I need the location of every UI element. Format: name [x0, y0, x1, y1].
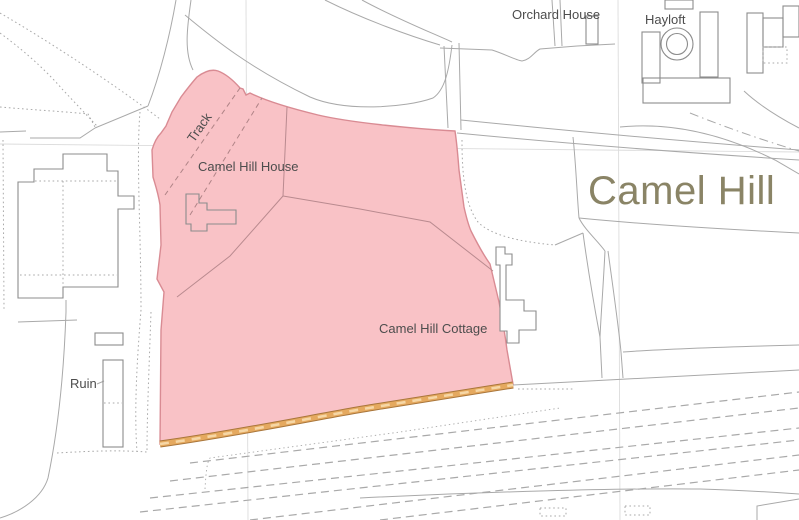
- label-orchard-house: Orchard House: [512, 7, 600, 22]
- map-canvas[interactable]: Orchard House Hayloft Track Camel Hill H…: [0, 0, 799, 520]
- label-camel-hill-cottage: Camel Hill Cottage: [379, 321, 487, 336]
- building-outline-west-house: [18, 154, 134, 298]
- building-outline-hayloft: [700, 12, 718, 77]
- map-svg: Orchard House Hayloft Track Camel Hill H…: [0, 0, 799, 520]
- label-ruin: Ruin: [70, 376, 97, 391]
- label-camel-hill-house: Camel Hill House: [198, 159, 298, 174]
- building-outline-cottage: [496, 247, 536, 343]
- hayloft-round-structure: [661, 28, 693, 60]
- label-camel-hill: Camel Hill: [588, 169, 775, 213]
- label-hayloft: Hayloft: [645, 12, 686, 27]
- building-outline-ruin-small: [95, 333, 123, 345]
